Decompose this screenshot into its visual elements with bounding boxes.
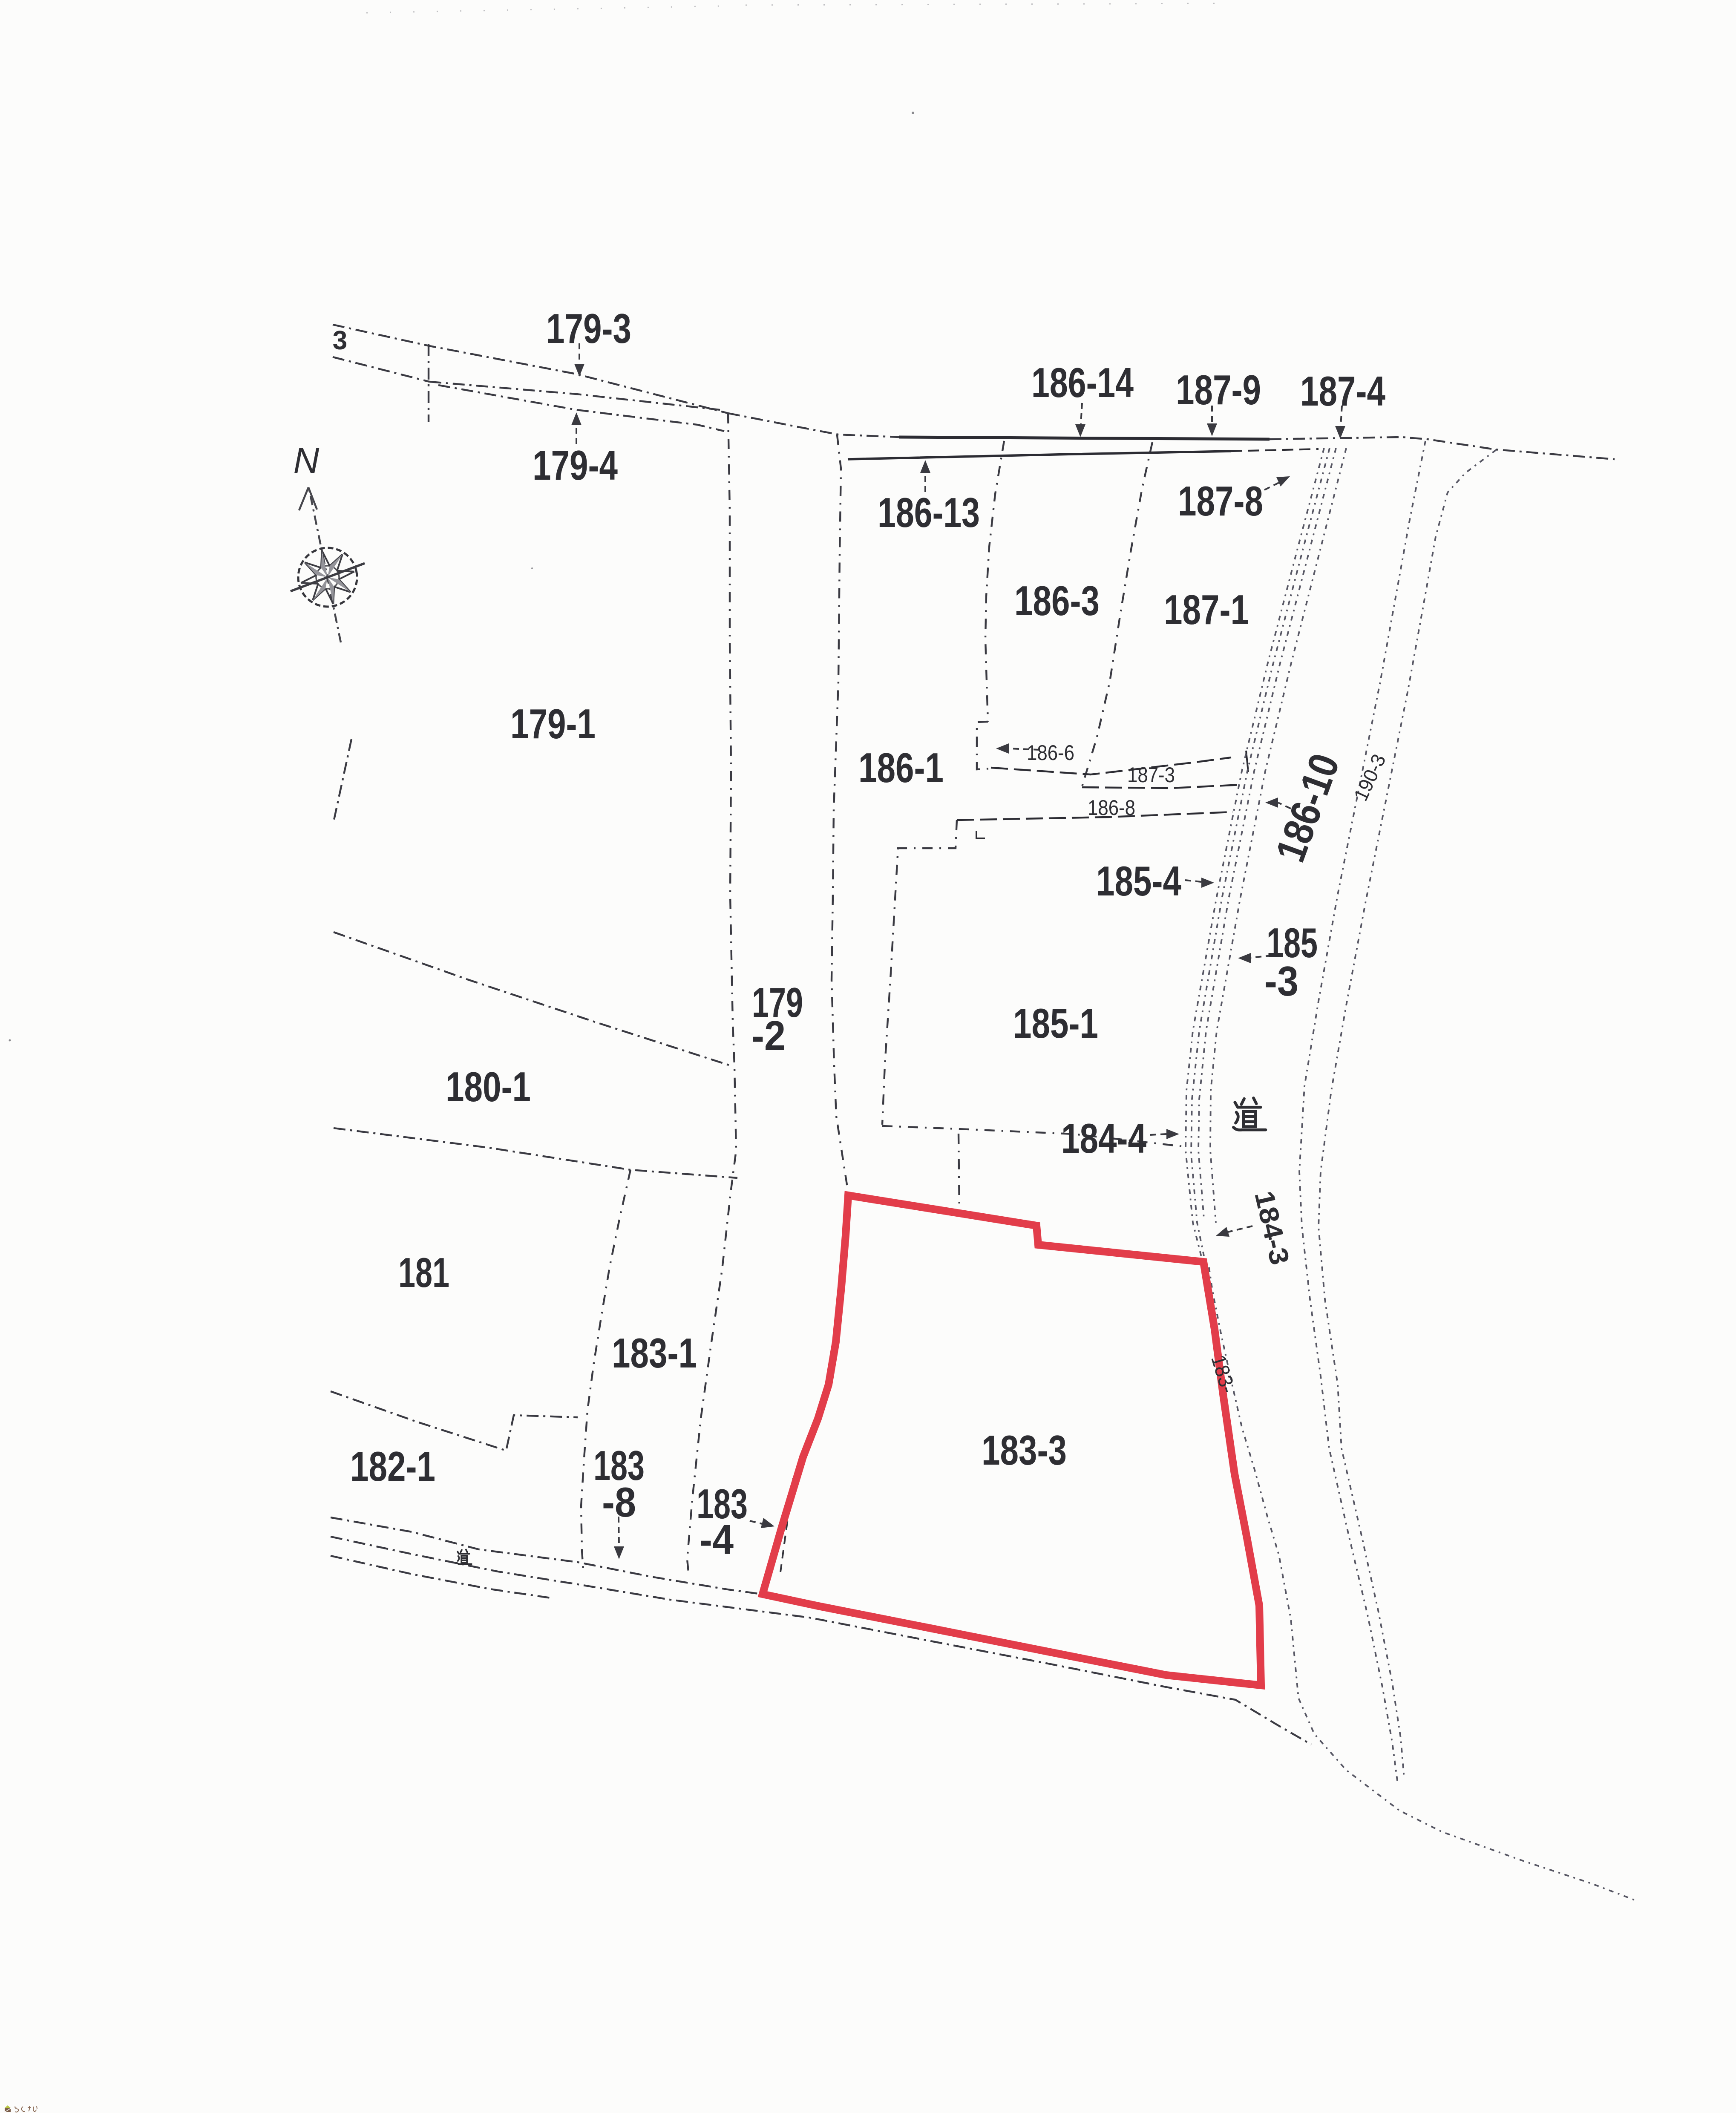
svg-text:-4: -4	[700, 1516, 734, 1563]
svg-text:186-1: 186-1	[858, 744, 944, 791]
svg-text:185-4: 185-4	[1096, 858, 1181, 904]
svg-text:N: N	[294, 440, 320, 481]
svg-text:187-8: 187-8	[1178, 478, 1263, 524]
svg-text:183-1: 183-1	[612, 1330, 697, 1376]
svg-text:184-4: 184-4	[1061, 1115, 1146, 1162]
svg-text:183-3: 183-3	[982, 1427, 1067, 1474]
svg-text:182-1: 182-1	[350, 1443, 435, 1490]
svg-text:3: 3	[333, 326, 347, 355]
svg-text:179-3: 179-3	[546, 305, 631, 352]
svg-text:186-13: 186-13	[878, 489, 980, 536]
svg-text:186-3: 186-3	[1014, 577, 1100, 624]
svg-text:179-1: 179-1	[510, 700, 596, 747]
svg-text:186-8: 186-8	[1088, 796, 1135, 820]
svg-text:-2: -2	[751, 1012, 786, 1059]
svg-text:186-14: 186-14	[1031, 359, 1134, 406]
svg-text:186-6: 186-6	[1027, 741, 1074, 765]
svg-text:180-1: 180-1	[446, 1063, 531, 1110]
svg-text:185-1: 185-1	[1013, 1000, 1098, 1047]
svg-text:-8: -8	[602, 1479, 636, 1526]
svg-text:181: 181	[398, 1249, 449, 1296]
svg-text:187-4: 187-4	[1300, 368, 1385, 415]
svg-text:-3: -3	[1264, 958, 1298, 1005]
svg-text:187-1: 187-1	[1164, 586, 1249, 633]
svg-text:187-9: 187-9	[1176, 366, 1261, 413]
svg-text:187-3: 187-3	[1127, 763, 1175, 787]
svg-text:179-4: 179-4	[533, 442, 618, 489]
